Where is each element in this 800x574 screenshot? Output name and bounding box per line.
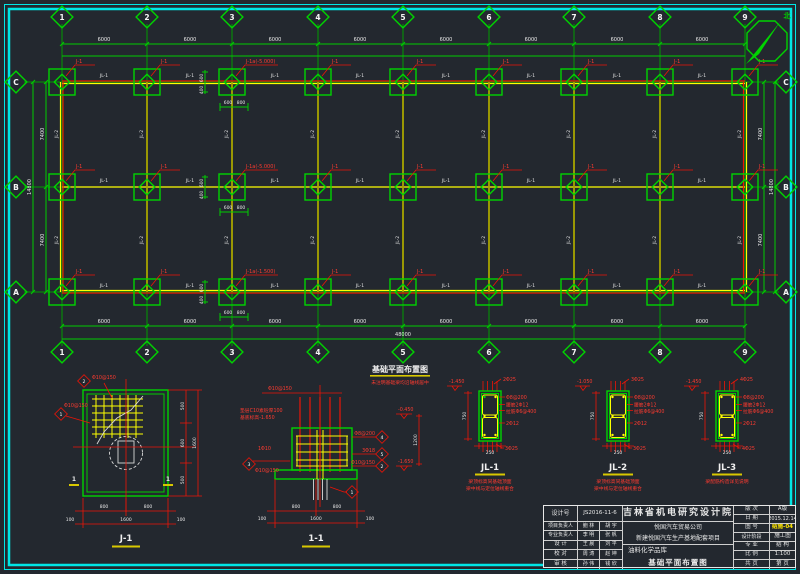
svg-text:Φ8@200: Φ8@200 xyxy=(743,395,764,401)
svg-text:JL-2: JL-2 xyxy=(395,130,401,139)
svg-text:JL-2: JL-2 xyxy=(481,130,487,139)
svg-text:400: 400 xyxy=(199,296,205,305)
svg-text:未注明基础梁均沿轴线居中: 未注明基础梁均沿轴线居中 xyxy=(371,379,429,386)
svg-text:J-1: J-1 xyxy=(416,59,423,65)
svg-text:JL-2: JL-2 xyxy=(737,130,743,139)
svg-text:750: 750 xyxy=(462,412,468,421)
svg-text:3Φ25: 3Φ25 xyxy=(633,446,646,452)
svg-text:250: 250 xyxy=(486,450,495,456)
svg-text:500: 500 xyxy=(180,402,186,411)
svg-text:J-1: J-1 xyxy=(160,164,167,170)
svg-text:1: 1 xyxy=(60,412,63,418)
svg-text:2: 2 xyxy=(144,348,149,357)
svg-text:100: 100 xyxy=(177,517,186,523)
svg-text:5: 5 xyxy=(400,348,405,357)
svg-text:基底标高-1.650: 基底标高-1.650 xyxy=(240,414,275,421)
tb-info-label: 专 业 xyxy=(734,542,770,551)
svg-text:JL-2: JL-2 xyxy=(566,236,572,245)
svg-text:垫层C10素砼厚100: 垫层C10素砼厚100 xyxy=(240,407,283,414)
svg-text:8: 8 xyxy=(657,348,662,357)
svg-text:6000: 6000 xyxy=(525,37,538,43)
svg-text:800: 800 xyxy=(100,504,109,510)
svg-text:JL-1: JL-1 xyxy=(612,283,621,289)
svg-text:5: 5 xyxy=(400,13,405,22)
svg-text:JL-1: JL-1 xyxy=(185,283,194,289)
svg-text:7400: 7400 xyxy=(758,234,764,247)
tb-staff-name: 周 涛 xyxy=(578,550,600,559)
svg-text:JL-1: JL-1 xyxy=(441,283,450,289)
svg-text:250: 250 xyxy=(723,450,732,456)
svg-text:6000: 6000 xyxy=(611,319,624,325)
tb-staff-label: 校 对 xyxy=(544,550,578,559)
svg-text:JL-2: JL-2 xyxy=(139,130,145,139)
svg-text:7: 7 xyxy=(571,13,576,22)
svg-text:400: 400 xyxy=(199,86,205,95)
svg-text:-1.650: -1.650 xyxy=(398,459,413,465)
svg-text:JL-2: JL-2 xyxy=(224,236,230,245)
svg-text:拉筋Φ6@400: 拉筋Φ6@400 xyxy=(743,408,773,415)
svg-text:梁中线与定位轴线重合: 梁中线与定位轴线重合 xyxy=(594,485,642,492)
foundation-beams xyxy=(61,81,747,293)
tb-staff-name: 孙 伟 xyxy=(578,560,600,569)
tb-staff-name: 李 明 xyxy=(578,531,600,540)
tb-staff-name: 鲍 林 xyxy=(578,522,600,531)
svg-text:6000: 6000 xyxy=(696,37,709,43)
svg-text:6000: 6000 xyxy=(696,319,709,325)
svg-text:A: A xyxy=(783,288,789,297)
svg-text:100: 100 xyxy=(258,516,267,522)
svg-text:JL-2: JL-2 xyxy=(652,236,658,245)
pad-labels: J-1J-1J-1a(-5.000)J-1J-1J-1J-1J-1J-1 J-1… xyxy=(66,59,778,286)
svg-text:800: 800 xyxy=(292,504,301,510)
svg-text:2Φ25: 2Φ25 xyxy=(503,377,516,383)
svg-text:1-1: 1-1 xyxy=(308,534,323,544)
svg-text:6000: 6000 xyxy=(525,319,538,325)
tb-design-no: JS2016-11-6 xyxy=(578,506,623,522)
tb-institute: 吉林省机电研究设计院 xyxy=(623,506,734,522)
svg-text:JL-2: JL-2 xyxy=(737,236,743,245)
svg-text:4: 4 xyxy=(381,435,384,441)
tb-drawing-number: 结施-04 xyxy=(770,524,795,533)
tb-staff-label: 审 核 xyxy=(544,560,578,569)
svg-text:J-1: J-1 xyxy=(587,269,594,275)
svg-text:2Φ12: 2Φ12 xyxy=(743,421,756,427)
svg-text:B: B xyxy=(783,183,789,192)
svg-text:2Φ12: 2Φ12 xyxy=(506,421,519,427)
svg-text:600: 600 xyxy=(199,179,205,188)
svg-text:7400: 7400 xyxy=(40,128,46,141)
svg-text:6000: 6000 xyxy=(184,319,197,325)
tb-staff-name: 钱 欣 xyxy=(600,560,623,569)
svg-text:JL-1: JL-1 xyxy=(270,178,279,184)
svg-text:600: 600 xyxy=(224,100,233,106)
tb-info-label: 比 例 xyxy=(734,551,770,560)
svg-text:6: 6 xyxy=(486,348,491,357)
tb-info-label: 共 页 xyxy=(734,560,770,569)
tb-subproject: 油料化学品库 xyxy=(623,545,734,556)
svg-text:250: 250 xyxy=(614,450,623,456)
svg-text:1: 1 xyxy=(166,476,170,483)
svg-text:100: 100 xyxy=(366,516,375,522)
svg-text:J-1: J-1 xyxy=(758,59,765,65)
svg-text:J-1a(-5.000): J-1a(-5.000) xyxy=(245,164,275,170)
cad-canvas[interactable]: 6000 6000 6000 6000 6000 6000 6000 6000 … xyxy=(0,0,800,574)
svg-text:JL-1: JL-1 xyxy=(697,73,706,79)
tb-info-value: A版 xyxy=(770,506,795,515)
svg-text:4Φ25: 4Φ25 xyxy=(742,446,755,452)
tb-info-value: 施工图 xyxy=(770,533,795,542)
svg-text:1: 1 xyxy=(59,348,64,357)
svg-text:Φ10@150: Φ10@150 xyxy=(64,403,88,409)
tb-staff-label: 专业负责人 xyxy=(544,531,578,540)
svg-text:6000: 6000 xyxy=(269,319,282,325)
svg-text:7400: 7400 xyxy=(40,234,46,247)
svg-text:6000: 6000 xyxy=(269,37,282,43)
svg-text:JL-2: JL-2 xyxy=(54,236,60,245)
svg-text:2: 2 xyxy=(381,464,384,470)
svg-text:JL-2: JL-2 xyxy=(566,130,572,139)
svg-text:JL-1: JL-1 xyxy=(270,283,279,289)
svg-text:6000: 6000 xyxy=(98,37,111,43)
svg-text:6: 6 xyxy=(486,13,491,22)
svg-text:-1.050: -1.050 xyxy=(577,379,592,385)
tb-staff-name: 刘 平 xyxy=(600,541,623,550)
svg-text:J-1: J-1 xyxy=(502,164,509,170)
tb-info-label: 日 期 xyxy=(734,515,770,524)
svg-text:Φ10@150: Φ10@150 xyxy=(268,386,292,392)
svg-text:1: 1 xyxy=(351,490,354,496)
svg-text:J-1: J-1 xyxy=(673,164,680,170)
tb-info-value: 结 构 xyxy=(770,542,795,551)
svg-text:3Φ25: 3Φ25 xyxy=(631,377,644,383)
svg-text:14800: 14800 xyxy=(769,179,775,195)
svg-text:J-1: J-1 xyxy=(502,269,509,275)
svg-text:9: 9 xyxy=(742,13,747,22)
svg-text:J-1: J-1 xyxy=(75,59,82,65)
svg-text:600: 600 xyxy=(199,74,205,83)
svg-text:腰筋2Φ12: 腰筋2Φ12 xyxy=(634,402,657,409)
svg-text:J-1: J-1 xyxy=(673,59,680,65)
svg-text:JL-1: JL-1 xyxy=(697,283,706,289)
svg-text:J-1: J-1 xyxy=(75,164,82,170)
svg-text:600: 600 xyxy=(199,284,205,293)
svg-text:梁顶标高同基础顶面: 梁顶标高同基础顶面 xyxy=(596,478,639,485)
tb-staff-name: 赵 坤 xyxy=(600,550,623,559)
svg-text:JL-1: JL-1 xyxy=(185,178,194,184)
svg-text:JL-2: JL-2 xyxy=(395,236,401,245)
svg-text:1: 1 xyxy=(72,476,76,483)
svg-text:JL-1: JL-1 xyxy=(185,73,194,79)
svg-text:9: 9 xyxy=(742,348,747,357)
beam-section-jl2: -1.050 750 3Φ25 Φ8@200 腰筋2Φ12 拉筋Φ6@400 2… xyxy=(575,377,664,492)
detail-1-1: Φ10@150 垫层C10素砼厚100 基底标高-1.650 1Φ10 3 Φ1… xyxy=(240,385,422,548)
svg-text:-1.450: -1.450 xyxy=(449,379,464,385)
svg-text:J-1: J-1 xyxy=(673,269,680,275)
tb-staff-label: 设 计 xyxy=(544,541,578,550)
beam-labels: JL-1JL-1JL-1JL-1JL-1JL-1JL-1JL-1 JL-1JL-… xyxy=(54,73,743,289)
svg-text:J-1a(-5.000): J-1a(-5.000) xyxy=(245,59,275,65)
svg-text:800: 800 xyxy=(237,100,246,106)
pad-small-dims: 600 400 600 800 600 400 600 800 600 400 … xyxy=(199,70,248,321)
svg-text:600: 600 xyxy=(224,205,233,211)
svg-text:6000: 6000 xyxy=(354,319,367,325)
tb-client: 悦国汽车贸易公司 xyxy=(623,522,734,533)
svg-text:1200: 1200 xyxy=(413,434,419,446)
svg-text:-1.450: -1.450 xyxy=(686,379,701,385)
svg-text:J-1: J-1 xyxy=(331,164,338,170)
svg-text:1600: 1600 xyxy=(192,437,198,449)
svg-text:6000: 6000 xyxy=(354,37,367,43)
svg-text:J-1: J-1 xyxy=(502,59,509,65)
svg-text:800: 800 xyxy=(237,205,246,211)
beam-section-jl3: -1.450 750 4Φ25 Φ8@200 腰筋2Φ12 拉筋Φ6@400 2… xyxy=(684,377,773,485)
svg-text:6000: 6000 xyxy=(440,319,453,325)
svg-text:JL-1: JL-1 xyxy=(355,73,364,79)
svg-text:J-1: J-1 xyxy=(758,164,765,170)
svg-text:2: 2 xyxy=(83,379,86,385)
tb-project: 新建悦国汽车生产基地配套项目 xyxy=(623,533,734,545)
svg-text:J-1: J-1 xyxy=(758,269,765,275)
svg-text:1: 1 xyxy=(59,13,64,22)
tb-staff-label: 项目负责人 xyxy=(544,522,578,531)
tb-info-value: 第 页 xyxy=(770,560,795,569)
svg-text:JL-1: JL-1 xyxy=(355,178,364,184)
svg-text:14800: 14800 xyxy=(27,179,33,195)
svg-text:8: 8 xyxy=(657,13,662,22)
title-block: 设计号 JS2016-11-6 项目负责人 鲍 林 胡 宇 专业负责人 李 明 … xyxy=(543,505,796,568)
svg-text:3Φ18: 3Φ18 xyxy=(362,448,375,454)
svg-text:C: C xyxy=(13,78,19,87)
svg-text:J-1: J-1 xyxy=(160,59,167,65)
svg-text:1600: 1600 xyxy=(310,516,322,522)
svg-text:J-1: J-1 xyxy=(160,269,167,275)
svg-text:800: 800 xyxy=(144,504,153,510)
beam-section-jl1: -1.450 750 2Φ25 Φ8@200 腰筋2Φ12 拉筋Φ6@400 2… xyxy=(447,377,536,492)
plan-title: 基础平面布置图 未注明基础梁均沿轴线居中 xyxy=(370,364,430,386)
svg-text:750: 750 xyxy=(590,412,596,421)
svg-text:JL-1: JL-1 xyxy=(99,73,108,79)
tb-staff-name: 张 帆 xyxy=(600,531,623,540)
svg-text:800: 800 xyxy=(333,504,342,510)
svg-text:腰筋2Φ12: 腰筋2Φ12 xyxy=(743,402,766,409)
svg-text:JL-2: JL-2 xyxy=(139,236,145,245)
tb-design-no-label: 设计号 xyxy=(544,506,578,522)
drawing-svg: 6000 6000 6000 6000 6000 6000 6000 6000 … xyxy=(0,0,800,574)
svg-text:7: 7 xyxy=(571,348,576,357)
svg-text:2Φ12: 2Φ12 xyxy=(634,421,647,427)
svg-text:梁中线与定位轴线重合: 梁中线与定位轴线重合 xyxy=(466,485,514,492)
svg-text:JL-1: JL-1 xyxy=(480,463,499,473)
svg-text:腰筋2Φ12: 腰筋2Φ12 xyxy=(506,402,529,409)
tb-staff-name: 胡 宇 xyxy=(600,522,623,531)
svg-text:750: 750 xyxy=(699,412,705,421)
svg-text:6000: 6000 xyxy=(184,37,197,43)
tb-info-label: 版 次 xyxy=(734,506,770,515)
svg-text:JL-2: JL-2 xyxy=(224,130,230,139)
svg-text:JL-3: JL-3 xyxy=(717,463,736,473)
svg-text:基础平面布置图: 基础平面布置图 xyxy=(371,364,428,374)
svg-text:JL-1: JL-1 xyxy=(441,178,450,184)
svg-text:JL-1: JL-1 xyxy=(526,73,535,79)
svg-text:5: 5 xyxy=(381,452,384,458)
svg-text:Φ8@200: Φ8@200 xyxy=(506,395,527,401)
svg-text:C: C xyxy=(783,78,789,87)
svg-text:J-1: J-1 xyxy=(416,269,423,275)
svg-text:JL-1: JL-1 xyxy=(612,178,621,184)
svg-text:6000: 6000 xyxy=(98,319,111,325)
svg-text:J-1: J-1 xyxy=(119,534,133,544)
svg-text:J-1: J-1 xyxy=(331,59,338,65)
svg-text:拉筋Φ6@400: 拉筋Φ6@400 xyxy=(506,408,536,415)
svg-text:JL-1: JL-1 xyxy=(612,73,621,79)
svg-text:800: 800 xyxy=(237,310,246,316)
svg-text:JL-1: JL-1 xyxy=(99,283,108,289)
svg-text:Φ10@150: Φ10@150 xyxy=(351,460,375,466)
svg-text:400: 400 xyxy=(199,191,205,200)
svg-text:JL-1: JL-1 xyxy=(441,73,450,79)
svg-text:600: 600 xyxy=(224,310,233,316)
svg-text:6000: 6000 xyxy=(440,37,453,43)
svg-text:梁配筋构造详见说明: 梁配筋构造详见说明 xyxy=(705,478,748,485)
svg-text:A: A xyxy=(13,288,19,297)
svg-text:JL-2: JL-2 xyxy=(608,463,627,473)
svg-text:3Φ25: 3Φ25 xyxy=(505,446,518,452)
svg-text:JL-1: JL-1 xyxy=(270,73,279,79)
svg-text:Φ10@150: Φ10@150 xyxy=(255,468,279,474)
svg-text:48000: 48000 xyxy=(395,332,411,338)
svg-text:1Φ10: 1Φ10 xyxy=(258,446,271,452)
svg-text:北: 北 xyxy=(784,11,791,20)
tb-scale-value: 1:100 xyxy=(770,551,795,560)
svg-text:JL-2: JL-2 xyxy=(481,236,487,245)
svg-text:Φ10@150: Φ10@150 xyxy=(92,375,116,381)
svg-text:拉筋Φ6@400: 拉筋Φ6@400 xyxy=(634,408,664,415)
svg-text:JL-1: JL-1 xyxy=(526,178,535,184)
north-arrow-icon: 北 xyxy=(746,11,791,64)
svg-text:JL-2: JL-2 xyxy=(54,130,60,139)
svg-text:J-1: J-1 xyxy=(587,59,594,65)
svg-text:J-1: J-1 xyxy=(75,269,82,275)
detail-j1: 2 Φ10@150 Φ10@150 1 500 600 500 1600 800… xyxy=(55,375,202,548)
svg-text:JL-1: JL-1 xyxy=(355,283,364,289)
svg-text:3: 3 xyxy=(248,462,251,468)
svg-text:J-1: J-1 xyxy=(587,164,594,170)
svg-text:100: 100 xyxy=(66,517,75,523)
tb-info-label: 图 号 xyxy=(734,524,770,533)
tb-drawing-name: 基础平面布置图 xyxy=(623,556,734,569)
svg-text:3: 3 xyxy=(229,348,234,357)
svg-text:JL-1: JL-1 xyxy=(697,178,706,184)
tb-staff-name: 王 晨 xyxy=(578,541,600,550)
svg-text:B: B xyxy=(13,183,19,192)
svg-text:J-1: J-1 xyxy=(416,164,423,170)
svg-text:500: 500 xyxy=(180,476,186,485)
svg-text:600: 600 xyxy=(180,439,186,448)
svg-text:3: 3 xyxy=(229,13,234,22)
svg-text:Φ8@200: Φ8@200 xyxy=(634,395,655,401)
svg-text:Φ8@200: Φ8@200 xyxy=(354,431,375,437)
svg-text:JL-1: JL-1 xyxy=(99,178,108,184)
tb-info-label: 设计阶段 xyxy=(734,533,770,542)
svg-text:JL-2: JL-2 xyxy=(652,130,658,139)
svg-text:1600: 1600 xyxy=(120,517,132,523)
svg-text:2: 2 xyxy=(144,13,149,22)
svg-text:J-1: J-1 xyxy=(331,269,338,275)
svg-text:JL-2: JL-2 xyxy=(310,130,316,139)
svg-text:4Φ25: 4Φ25 xyxy=(740,377,753,383)
svg-text:4: 4 xyxy=(315,348,320,357)
tb-info-value: 2015.12.14 xyxy=(770,515,795,524)
svg-text:6000: 6000 xyxy=(611,37,624,43)
svg-text:梁顶标高同基础顶面: 梁顶标高同基础顶面 xyxy=(468,478,511,485)
svg-text:JL-1: JL-1 xyxy=(526,283,535,289)
svg-text:-0.450: -0.450 xyxy=(398,407,413,413)
svg-text:J-1a(-1.500): J-1a(-1.500) xyxy=(245,269,275,275)
svg-text:4: 4 xyxy=(315,13,320,22)
svg-text:JL-2: JL-2 xyxy=(310,236,316,245)
svg-text:7400: 7400 xyxy=(758,128,764,141)
